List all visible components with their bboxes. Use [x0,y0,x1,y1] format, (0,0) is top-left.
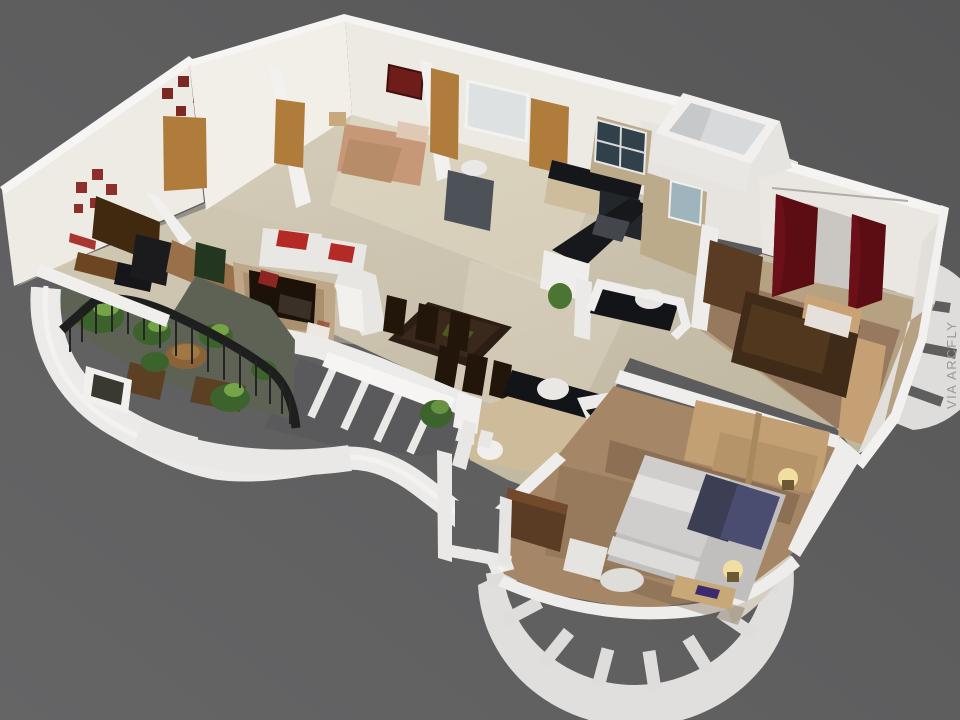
svg-text:VIA ARCFLY: VIA ARCFLY [944,321,959,409]
